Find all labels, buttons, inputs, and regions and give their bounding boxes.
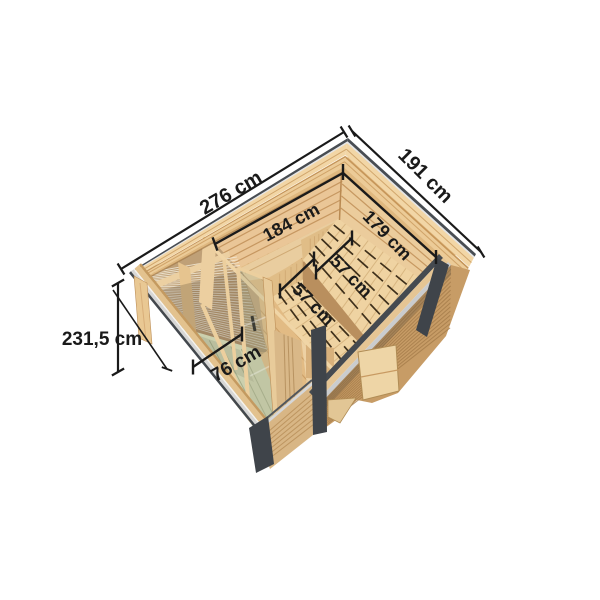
svg-text:231,5 cm: 231,5 cm [62,329,142,350]
